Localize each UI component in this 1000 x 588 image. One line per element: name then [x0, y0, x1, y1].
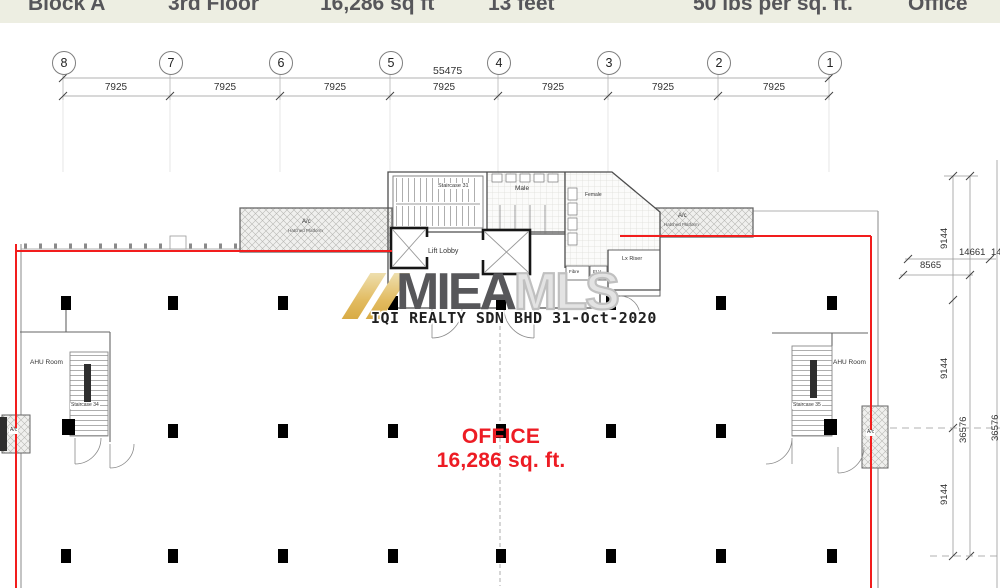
label-staircase-top: Staircase 31 [437, 183, 470, 189]
offset-dim-b: 8565 [920, 260, 941, 271]
bay-dim-vertical: 9144 [939, 484, 950, 505]
offset-dim-a-partial: 14661 [991, 247, 1000, 258]
header-ceiling: 13 feet [488, 0, 555, 16]
label-lift-lobby: Lift Lobby [428, 248, 458, 256]
grid-bubble-8: 8 [52, 51, 76, 75]
office-title: OFFICE [401, 425, 601, 449]
grid-bubble-1: 1 [818, 51, 842, 75]
label-ahu-right: AHU Room [833, 359, 866, 366]
header-block: Block A [28, 0, 105, 16]
label-staircase-right: Staircase 35 [792, 403, 822, 409]
bay-dim-vertical: 9144 [939, 358, 950, 379]
label-ac-bottom-left: A/c [9, 428, 18, 434]
grid-bubble-6: 6 [269, 51, 293, 75]
bay-dim: 7925 [648, 82, 678, 93]
header-floor: 3rd Floor [168, 0, 259, 16]
label-female-toilet: Female [585, 193, 602, 199]
watermark-brand: MIEA MLS [396, 272, 618, 314]
bay-dim: 7925 [101, 82, 131, 93]
offset-dim-a: 14661 [959, 247, 985, 258]
bay-dim: 7925 [210, 82, 240, 93]
label-staircase-left: Staircase 34 [70, 403, 100, 409]
label-ac-bottom-right: A/c [866, 430, 875, 436]
bay-dim: 7925 [538, 82, 568, 93]
label-lx-riser: Lx Riser [622, 256, 642, 262]
watermark-caption: IQI REALTY SDN BHD 31-Oct-2020 [371, 309, 657, 327]
total-depth-dim: 36576 [958, 417, 969, 443]
bay-dim: 7925 [320, 82, 350, 93]
overall-width-dim: 55475 [433, 65, 462, 77]
grid-bubble-5: 5 [379, 51, 403, 75]
bay-dim-vertical: 9144 [939, 228, 950, 249]
watermark-miea: MIEA [396, 272, 514, 314]
label-male-toilet: Male [515, 185, 529, 192]
label-ahu-left: AHU Room [30, 359, 63, 366]
office-area-value: 16,286 sq. ft. [401, 449, 601, 473]
label-ac-ledge-left: A/c [302, 219, 311, 226]
watermark-mls: MLS [514, 272, 618, 314]
header-area: 16,286 sq ft [320, 0, 434, 16]
bay-dim: 7925 [759, 82, 789, 93]
grid-bubble-3: 3 [597, 51, 621, 75]
summary-header-bar: Block A 3rd Floor 16,286 sq ft 13 feet 5… [0, 0, 1000, 23]
label-ac-ledge-right: A/c [678, 213, 687, 220]
grid-bubble-4: 4 [487, 51, 511, 75]
bay-dim: 7925 [429, 82, 459, 93]
label-ac-ledge-left-sub: Hatched Platform [288, 229, 323, 234]
grid-dimension-lines [59, 74, 833, 586]
grid-bubble-2: 2 [707, 51, 731, 75]
total-depth-dim-partial: 36576 [990, 415, 1000, 441]
header-use-type: Office [908, 0, 968, 16]
header-floor-load: 50 lbs per sq. ft. [693, 0, 853, 16]
label-ac-ledge-right-sub: Hatched Platform [664, 223, 699, 228]
office-area-label: OFFICE 16,286 sq. ft. [401, 425, 601, 473]
floor-plan-page: Block A 3rd Floor 16,286 sq ft 13 feet 5… [0, 0, 1000, 588]
ahu-left [20, 308, 134, 468]
female-toilet-floor [565, 172, 660, 268]
grid-bubble-7: 7 [159, 51, 183, 75]
